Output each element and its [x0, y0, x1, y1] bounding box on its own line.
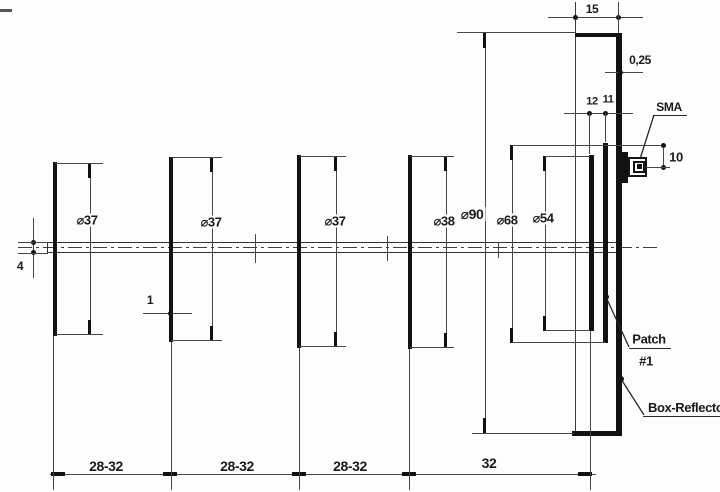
dim-4-line	[33, 218, 34, 278]
sma-callout-label: SMA	[654, 101, 683, 113]
dim-11-label: 11	[601, 95, 616, 106]
boom-joint-tick-2	[387, 236, 388, 261]
dim-dir1-ext-top	[55, 163, 103, 164]
dim-4-label: 4	[15, 260, 25, 272]
boom-top-edge	[47, 242, 616, 243]
dim-dir2-arrow-bottom	[210, 326, 213, 341]
centerline	[18, 247, 658, 248]
dim-025-label: 0,25	[627, 54, 653, 66]
dim-dir2-ext-top	[171, 157, 222, 158]
dim-dir1-arrow-bottom	[88, 320, 91, 335]
dim-patch2-ext-bottom	[545, 330, 590, 331]
spacing-4-label: 32	[480, 456, 499, 470]
dim-10-ext-bottom	[646, 167, 670, 168]
boom-joint-tick-3	[498, 242, 499, 258]
boxreflector-leader-dot	[618, 376, 624, 382]
chain-ext-disc1	[53, 336, 54, 490]
dim-reflector-arrow-bottom	[483, 418, 486, 433]
dim-10-line	[663, 145, 664, 167]
dim-dir1-line	[90, 164, 91, 335]
box-reflector-top-wall	[575, 33, 622, 37]
dim-reflector-diameter-label: ⌀90	[459, 207, 486, 221]
director-disc-3	[297, 155, 301, 348]
patch-element-1	[603, 143, 608, 343]
dim-15-label: 15	[584, 3, 601, 15]
box-reflector-open-face	[575, 2, 576, 433]
dim-1211-ext-patch1	[605, 113, 606, 142]
patch-element-2	[589, 155, 594, 331]
chain-tick-2	[163, 472, 177, 476]
chain-ext-patch	[590, 331, 591, 490]
dim-reflector-ext-bottom	[472, 433, 574, 434]
dim-1-dot	[168, 311, 173, 316]
dim-dir3-arrow-top	[334, 156, 337, 171]
dim-dir4-ext-top	[410, 156, 454, 157]
dim-patch2-ext-top	[545, 156, 590, 157]
dim-12-label: 12	[584, 97, 599, 108]
dim-10-label: 10	[667, 151, 685, 164]
box-reflector-bottom-wall	[572, 431, 622, 436]
dim-director3-diameter-label: ⌀37	[322, 215, 347, 228]
dim-patch2-arrow-top	[543, 156, 546, 171]
dim-025-dot	[618, 70, 623, 75]
chain-ext-disc3	[299, 348, 300, 490]
boxreflector-underline	[643, 416, 720, 417]
antenna-technical-drawing: ⌀37 ⌀37 ⌀37 ⌀38 ⌀90 ⌀68 ⌀54 15 0,25 12 1…	[0, 0, 720, 492]
patch-number-label: #1	[637, 355, 655, 368]
dim-4-ext-top	[18, 242, 48, 243]
dim-patch1-ext-top	[512, 145, 664, 146]
patch-leader-dot	[603, 294, 609, 300]
sma-underline	[653, 115, 687, 116]
dim-dir4-line	[446, 156, 447, 348]
dim-10-dot-top	[661, 143, 666, 148]
chain-ext-disc4	[409, 349, 410, 490]
dim-15-ext-right	[618, 2, 619, 33]
boom-left-cap	[47, 242, 48, 253]
dim-patch1-ext-bottom	[512, 342, 605, 343]
dim-dir3-line	[336, 156, 337, 347]
dim-director2-diameter-label: ⌀37	[198, 216, 223, 229]
dim-15-line	[548, 17, 643, 18]
dim-dir3-ext-bottom	[299, 346, 346, 347]
spacing-chain-line	[50, 474, 596, 475]
dim-patch1-line	[512, 145, 513, 343]
leader-lines	[0, 0, 720, 492]
patch-underline	[629, 348, 671, 349]
director-disc-4	[408, 155, 412, 349]
patch-callout-label: Patch	[630, 333, 667, 346]
dim-reflector-arrow-top	[483, 33, 486, 48]
dim-dir2-ext-bottom	[171, 340, 222, 341]
dim-dir2-line	[212, 157, 213, 341]
dim-4-ext-bottom	[18, 253, 48, 254]
dim-dir1-ext-bottom	[55, 334, 103, 335]
dim-director4-diameter-label: ⌀38	[431, 215, 456, 228]
boom-bottom-edge	[47, 252, 616, 253]
dim-director1-diameter-label: ⌀37	[74, 214, 99, 227]
dim-dir4-ext-bottom	[410, 347, 454, 348]
sma-flange	[621, 152, 628, 183]
dim-dir4-arrow-top	[444, 156, 447, 171]
dim-dir2-arrow-top	[210, 157, 213, 172]
spacing-2-label: 28-32	[218, 459, 256, 473]
dim-dir1-arrow-top	[88, 163, 91, 178]
spacing-1-label: 28-32	[87, 459, 125, 473]
dim-patch1-arrow-top	[510, 145, 513, 160]
dim-dir4-arrow-bottom	[444, 333, 447, 348]
sma-center-pin	[637, 164, 642, 169]
scan-artifact	[0, 9, 12, 12]
dim-dir3-arrow-bottom	[334, 332, 337, 347]
chain-ext-disc2	[171, 342, 172, 490]
director-disc-1	[53, 162, 57, 336]
dim-patch1-arrow-bottom	[510, 328, 513, 343]
dim-patch2-line	[545, 156, 546, 331]
dim-1211-ext-patch2	[589, 113, 590, 154]
box-reflector-callout-label: Box-Reflector	[646, 401, 720, 414]
dim-patch2-diameter-label: ⌀54	[530, 212, 555, 225]
dim-reflector-line	[485, 33, 486, 433]
dim-dir3-ext-top	[299, 156, 346, 157]
dim-15-dot-left	[573, 15, 578, 20]
dim-1211-line	[564, 113, 633, 114]
boom-joint-tick-1	[255, 234, 256, 263]
dim-patch2-arrow-bottom	[543, 316, 546, 331]
dim-025-line	[605, 72, 643, 73]
dim-reflector-ext-top	[457, 32, 576, 33]
spacing-3-label: 28-32	[331, 459, 369, 473]
dim-1-label: 1	[145, 294, 155, 306]
dim-patch1-diameter-label: ⌀68	[494, 214, 519, 227]
